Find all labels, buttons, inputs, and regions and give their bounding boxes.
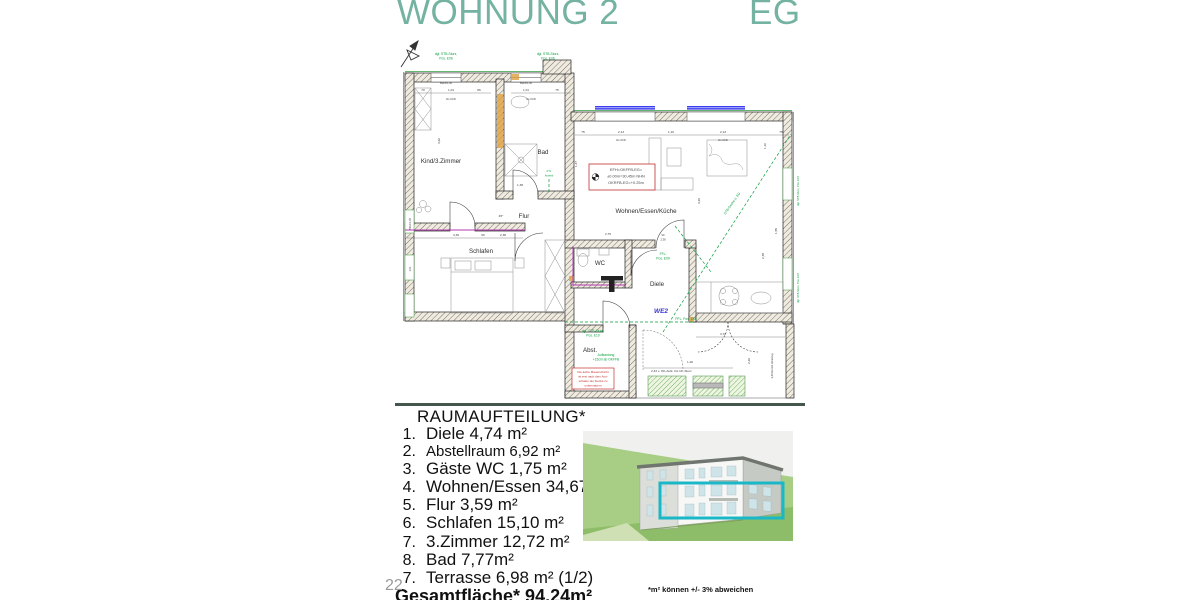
dim: 2,13 xyxy=(720,130,726,134)
furniture xyxy=(415,88,783,313)
dim: 75 xyxy=(555,88,559,92)
total-area: Gesamtfläche* 94,24m² xyxy=(395,587,675,600)
annotation-sturz-e07: dgl. STB-Sturz, Pos. E07 xyxy=(796,176,800,206)
annotation-aufkantung: Aufkantung xyxy=(598,353,615,357)
list-item-text: Terrasse 6,98 m² (1/2) xyxy=(426,568,593,587)
dim: bis UKD xyxy=(718,138,728,142)
dim: 3,49 bis UK-Unterzug xyxy=(770,353,774,378)
list-item-number: 6. xyxy=(395,515,416,532)
list-item-text: Abstellraum 6,92 m² xyxy=(426,443,560,460)
annotation-sturz-e07: dgl. STB-Sturz, Pos. E07 xyxy=(796,273,800,303)
area-footnote: *m² können +/- 3% abweichen xyxy=(648,585,753,594)
list-item: 7.Terrasse 6,98 m² (1/2) xyxy=(395,569,675,587)
list-item-text: Flur 3,59 m² xyxy=(426,495,518,514)
annotation-section: STB-Decke ü. EG xyxy=(723,191,742,215)
level-line: OKRFB-EG=+0.25m xyxy=(608,180,644,185)
warning-line: untermauern xyxy=(584,384,601,388)
dim: 90 xyxy=(481,233,485,237)
room-label-diele: Diele xyxy=(650,281,665,288)
north-arrow-icon xyxy=(401,41,419,67)
warning-note-box: Die letzte Mauerschicht ist erst nach de… xyxy=(572,368,614,389)
list-item-number: 1. xyxy=(395,426,416,443)
dim: 3,62 xyxy=(437,138,441,144)
dim: 3,72 xyxy=(720,332,726,336)
room-label-flur: Flur xyxy=(519,213,530,220)
annotation-sturz-e06: dgl. STB-Sturz, xyxy=(537,52,559,56)
page-number: 22 xyxy=(385,577,403,595)
warning-line: ist erst nach dem Aus- xyxy=(578,375,608,379)
dim: 1,10 xyxy=(668,130,674,134)
windows xyxy=(405,73,792,317)
list-item-text: Schlafen 15,10 m² xyxy=(426,513,564,532)
divider-rule xyxy=(395,403,805,406)
dim: 1,01 xyxy=(523,88,529,92)
annotation-sturz-e06: Pos. E06 xyxy=(439,57,453,61)
room-label-schlafen: Schlafen xyxy=(469,248,494,255)
annotation-ffl-e09: Pos. E09 xyxy=(656,257,670,261)
unit-label-we2: WE2 xyxy=(654,308,668,315)
dim: 75 xyxy=(779,130,783,134)
list-item-text: 3.Zimmer 12,72 m² xyxy=(426,532,570,551)
room-label-abst: Abst. xyxy=(583,347,597,354)
list-item-number: 5. xyxy=(395,497,416,514)
list-item-number: 4. xyxy=(395,479,416,496)
list-item-number: 7. xyxy=(395,534,416,551)
annotation-ftl: FTL xyxy=(547,169,552,173)
level-line: EFH=OKFFB-EG= xyxy=(610,167,643,172)
dim: 45° xyxy=(499,214,504,218)
section-lines xyxy=(549,134,791,332)
annotation-aufkantung: +15cm ab OKFFB xyxy=(593,358,620,362)
dim: 1,01 xyxy=(448,88,454,92)
dim: 1,10 xyxy=(763,143,767,149)
warning-line: schalen der Decke zu xyxy=(579,379,608,383)
list-item: 8.Bad 7,77m² xyxy=(395,551,675,569)
dim: 1,20 xyxy=(687,360,693,364)
warning-line: Die letzte Mauerschicht xyxy=(577,370,608,374)
building-3d-render xyxy=(583,431,793,541)
level-note-box: EFH=OKFFB-EG= ±0.00m=30,45m NHN OKRFB-EG… xyxy=(589,164,655,190)
dim: 2,43 v. OK-Aufk. bis UK-Sturz xyxy=(651,369,692,373)
room-label-wc: WC xyxy=(595,260,606,267)
annotation-pfl-e08: PFL, Pos. E08 xyxy=(675,317,696,321)
annotation-sturz-e10: dgl. STB-Sturz, xyxy=(582,329,604,333)
annotation-sturz-e06: Pos. E06 xyxy=(541,57,555,61)
dim: 2,38 xyxy=(500,233,506,237)
list-item-text: Gäste WC 1,75 m² xyxy=(426,459,567,478)
dim: 1,55 xyxy=(774,228,778,234)
list-item-number: 3. xyxy=(395,461,416,478)
dim: 2,75 xyxy=(605,232,611,236)
dim: bis UKD xyxy=(616,138,626,142)
dim: 2,13 xyxy=(618,130,624,134)
annotation-ftl: Antrieb xyxy=(545,174,554,178)
list-item-number: 2. xyxy=(395,443,416,460)
dim: BRH=1,00 xyxy=(408,217,412,230)
list-item-text: Bad 7,77m² xyxy=(426,550,514,569)
dim: bis UKD xyxy=(446,97,456,101)
room-list-heading: RAUMAUFTEILUNG* xyxy=(417,408,675,425)
dim: 1,01 xyxy=(408,266,412,272)
room-label-kind: Kind/3.Zimmer xyxy=(421,158,461,165)
dim: 86 xyxy=(477,88,481,92)
dim: 3,39 xyxy=(453,233,459,237)
dim: BRH=1,00 xyxy=(520,81,533,85)
dim: BRH=1,00 xyxy=(440,81,453,85)
page-title: WOHNUNG 2 xyxy=(397,0,619,33)
dim: 3,26 xyxy=(697,198,701,204)
dim: 75 xyxy=(581,130,585,134)
dim: 1,38 xyxy=(517,183,523,187)
room-label-wohnen: Wohnen/Essen/Küche xyxy=(615,208,677,215)
annotation-ffl-e09: FFL, xyxy=(660,252,667,256)
room-label-bad: Bad xyxy=(537,149,549,156)
dim: 1,47 xyxy=(574,161,578,167)
dim-red: 2,38 xyxy=(761,253,765,259)
list-item-number: 8. xyxy=(395,552,416,569)
dim: 70 xyxy=(421,88,425,92)
dim: 2,38 xyxy=(660,238,666,242)
annotation-sturz-e06: dgl. STB-Sturz, xyxy=(435,52,457,56)
level-line: ±0.00m=30,45m NHN xyxy=(607,174,645,179)
floor-label: EG xyxy=(749,0,801,33)
dim: 90 xyxy=(662,233,665,237)
dim: bis UKD xyxy=(526,97,536,101)
page: WOHNUNG 2 EG xyxy=(0,0,1200,600)
annotation-sturz-e10: Pos. E10 xyxy=(586,334,600,338)
floor-plan: 70 1,01 86 1,01 75 BRH=1,00 BRH=1,00 bis… xyxy=(393,36,807,404)
dim: 2,26 xyxy=(747,358,751,364)
list-item-text: Diele 4,74 m² xyxy=(426,424,527,443)
doors xyxy=(450,170,758,370)
